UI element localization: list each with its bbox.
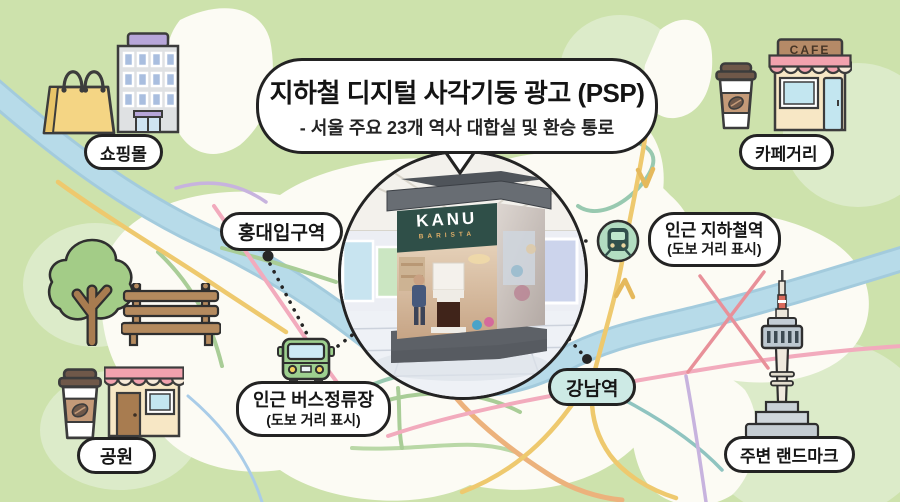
label-gangnam-station-text: 강남역: [566, 374, 618, 401]
label-shopping-mall: 쇼핑몰: [84, 134, 163, 170]
pillar-side-ad: [497, 203, 545, 329]
label-landmark: 주변 랜드마크: [724, 436, 855, 473]
station-scene: KANU BARISTA: [341, 153, 585, 397]
psp-ad-location-infographic: KANU BARISTA 지하철 디지털 사각기둥 광고 (PSP) -: [0, 0, 900, 502]
callout-subway-line1: 인근 지하철역: [665, 220, 764, 241]
callout-bus-line2: (도보 거리 표시): [253, 412, 374, 430]
park-coffee-cup-icon: [54, 368, 106, 440]
subway-train-icon: [595, 218, 641, 266]
tower-icon: [740, 270, 824, 442]
kanu-logo: KANU: [416, 208, 478, 230]
station-inset-circle: KANU BARISTA: [338, 150, 588, 400]
label-cafe-street-text: 카페거리: [755, 140, 818, 165]
shopping-bag-icon: [39, 56, 119, 138]
callout-subway-line2: (도보 거리 표시): [665, 241, 764, 259]
title-bubble: 지하철 디지털 사각기둥 광고 (PSP) - 서울 주요 23개 역사 대합실…: [256, 58, 658, 154]
callout-bus-stop: 인근 버스정류장 (도보 거리 표시): [236, 381, 391, 437]
cafe-shop-icon: CAFE: [768, 38, 852, 132]
callout-bus-line1: 인근 버스정류장: [253, 389, 374, 412]
label-hongdae-station: 홍대입구역: [220, 212, 343, 251]
coffee-cup-icon: [712, 62, 760, 130]
callout-subway-station: 인근 지하철역 (도보 거리 표시): [648, 212, 781, 267]
label-park-text: 공원: [100, 443, 133, 469]
bench-icon: [121, 283, 221, 347]
page-subtitle: - 서울 주요 23개 역사 대합실 및 환승 통로: [300, 114, 614, 140]
label-shopping-mall-text: 쇼핑몰: [100, 140, 147, 165]
gangnam-map-dot: [582, 354, 592, 364]
label-landmark-text: 주변 랜드마크: [740, 442, 839, 467]
label-park: 공원: [77, 437, 156, 474]
building-icon: [113, 32, 183, 134]
label-cafe-street: 카페거리: [739, 134, 834, 170]
page-title: 지하철 디지털 사각기둥 광고 (PSP): [270, 73, 645, 110]
park-shop-icon: [104, 366, 184, 438]
label-hongdae-station-text: 홍대입구역: [238, 218, 325, 245]
label-gangnam-station: 강남역: [548, 368, 636, 406]
hongdae-map-dot: [263, 251, 274, 262]
